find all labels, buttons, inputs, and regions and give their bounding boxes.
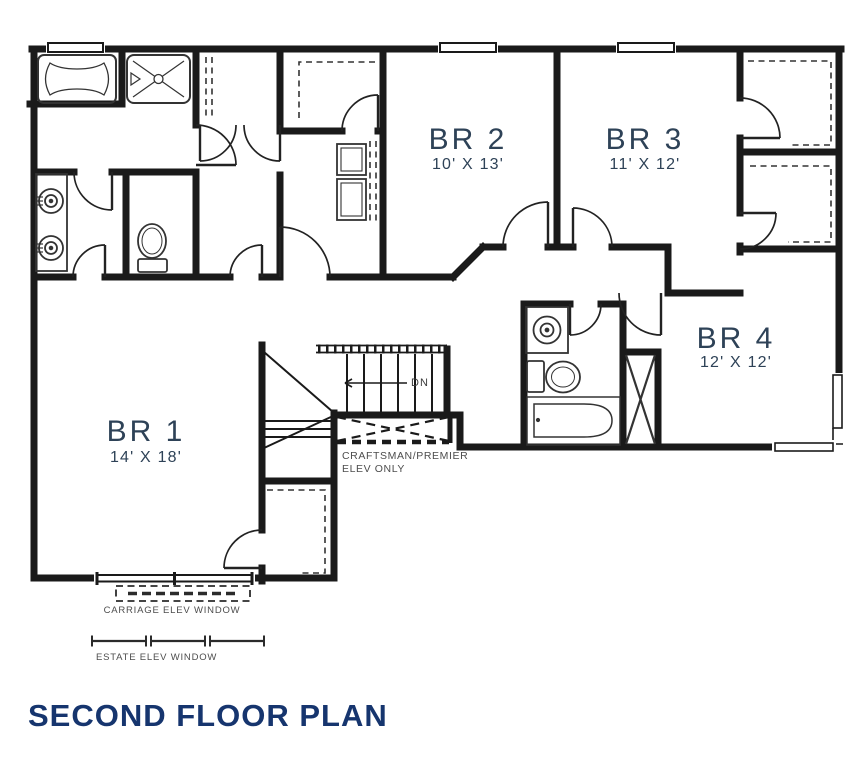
stair-treads — [264, 352, 432, 448]
master-toilet — [138, 224, 167, 272]
carriage-window-label: CARRIAGE ELEV WINDOW — [104, 605, 241, 616]
floor-plan-page: BR 1 14' X 18' BR 2 10' X 13' BR 3 11' X… — [0, 0, 863, 768]
room-label-br4: BR 4 — [697, 322, 776, 356]
room-label-br2: BR 2 — [429, 123, 508, 157]
door-hall-bath — [570, 304, 601, 335]
window-top-br2 — [438, 42, 498, 53]
window-top-br3 — [616, 42, 676, 53]
washer-dryer — [337, 144, 366, 220]
room-dims-br1: 14' X 18' — [110, 449, 182, 467]
room-label-br1: BR 1 — [107, 415, 186, 449]
door-br1 — [230, 245, 262, 277]
estate-window-label: ESTATE ELEV WINDOW — [96, 652, 217, 663]
door-toilet-room — [74, 172, 112, 210]
door-br3-closet — [740, 98, 780, 138]
elev-note-line1: CRAFTSMAN/PREMIER — [342, 450, 468, 462]
carriage-window-detail — [116, 586, 250, 601]
door-laundry — [280, 227, 330, 277]
room-dims-br4: 12' X 12' — [700, 354, 772, 372]
plan-title: SECOND FLOOR PLAN — [28, 698, 388, 734]
window-right-br4 — [830, 373, 844, 444]
bathtub — [527, 397, 620, 445]
shower — [127, 55, 190, 103]
estate-window-detail — [92, 636, 264, 647]
door-master-bath — [73, 245, 105, 277]
linen-closet-x — [626, 355, 655, 444]
garden-tub — [38, 55, 116, 103]
master-bath-fixtures — [36, 55, 190, 272]
hall-toilet — [527, 361, 580, 393]
staircase — [264, 346, 447, 449]
room-dims-br2: 10' X 13' — [432, 156, 504, 174]
door-br1-closet — [224, 530, 262, 568]
door-br4-closet — [740, 213, 776, 249]
elev-note-line2: ELEV ONLY — [342, 463, 405, 475]
door-master-closet-double — [200, 125, 280, 161]
room-dims-br3: 11' X 12' — [610, 156, 681, 174]
window-br1 — [94, 571, 255, 585]
stairs-dn-label: DN — [411, 377, 429, 389]
window-top-1 — [46, 42, 105, 53]
window-bottom-br4 — [772, 440, 836, 453]
room-label-br3: BR 3 — [606, 123, 685, 157]
door-laundry-closet — [342, 95, 378, 131]
double-vanity — [36, 174, 67, 271]
hall-sink — [526, 307, 568, 353]
elevator-option-box — [337, 415, 450, 443]
door-br3 — [573, 208, 612, 247]
door-br2 — [503, 202, 548, 247]
